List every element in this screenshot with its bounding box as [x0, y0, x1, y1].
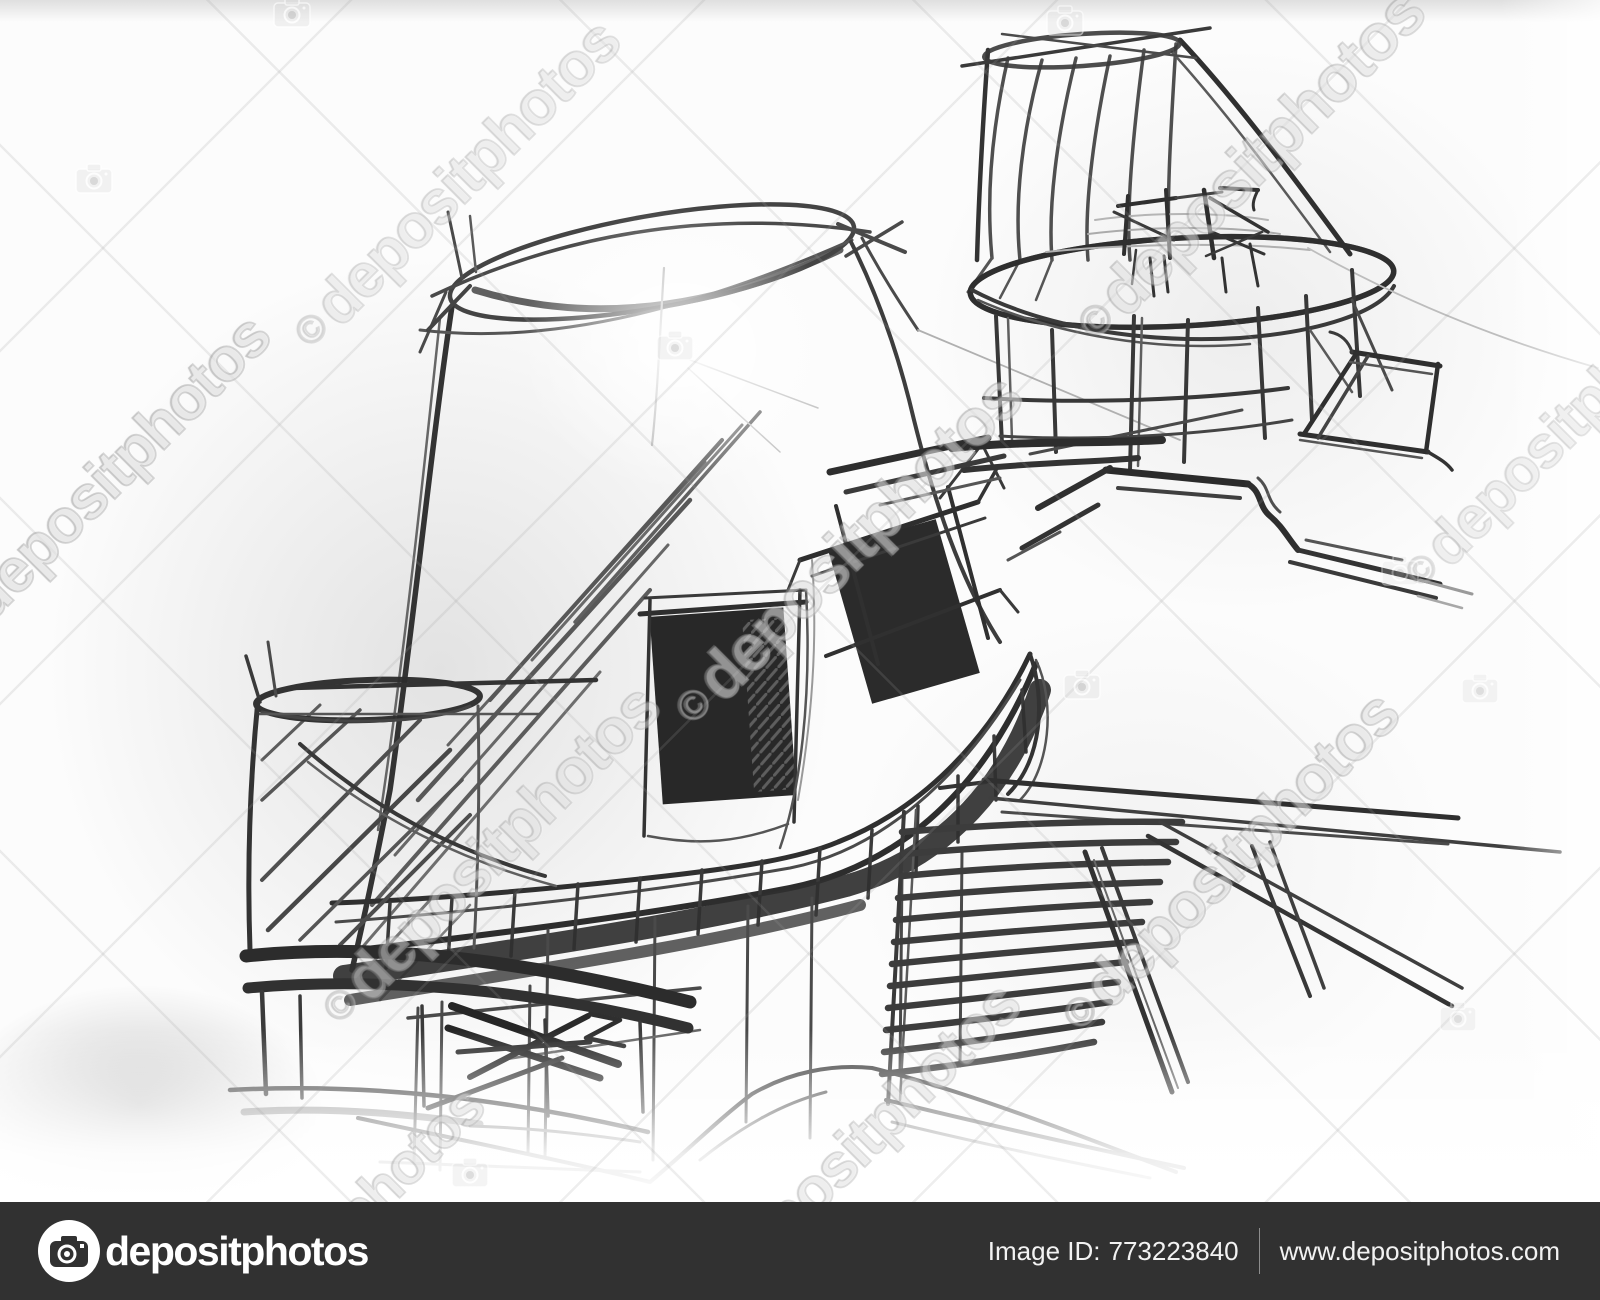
image-id-label: Image ID: — [988, 1236, 1101, 1267]
footer-divider — [1259, 1228, 1260, 1274]
door-panel-1 — [640, 560, 814, 848]
under-deck-posts — [408, 852, 962, 1170]
boardwalk-deck — [882, 780, 1560, 1178]
footer-bar: depositphotos Image ID: 773223840 www.de… — [0, 1202, 1600, 1300]
camera-logo-icon — [38, 1220, 100, 1282]
ramp-frame — [1300, 332, 1458, 472]
foreground-scribble-bundle — [428, 1006, 624, 1108]
pavilion-platform — [968, 214, 1598, 368]
image-id-value: 773223840 — [1108, 1236, 1238, 1267]
footer-info: Image ID: 773223840 www.depositphotos.co… — [988, 1202, 1560, 1300]
stock-photo-preview: ©depositphotos ©depositphotos ©depositph… — [0, 0, 1600, 1300]
pencil-sketch — [0, 0, 1600, 1202]
brand-logo: depositphotos — [38, 1202, 368, 1300]
connecting-path — [1008, 468, 1472, 608]
website-url: www.depositphotos.com — [1280, 1236, 1560, 1267]
sketch-artwork: ©depositphotos ©depositphotos ©depositph… — [0, 0, 1600, 1202]
brand-name: depositphotos — [105, 1228, 368, 1275]
